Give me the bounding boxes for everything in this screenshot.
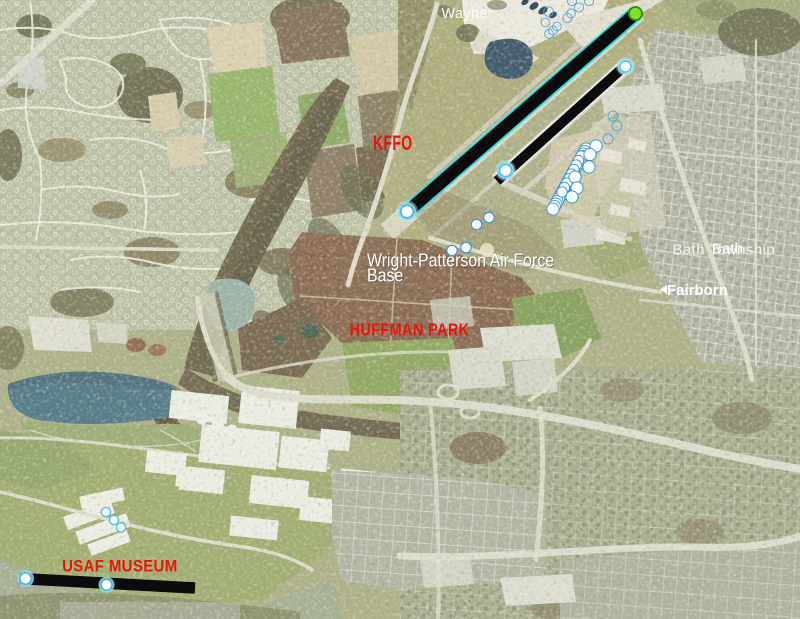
- svg-text:KFFO: KFFO: [373, 131, 412, 155]
- svg-text:Base: Base: [367, 264, 403, 285]
- svg-text:HUFFMAN PARK: HUFFMAN PARK: [350, 320, 470, 340]
- svg-text:Bath: Bath: [712, 241, 743, 258]
- svg-text:Fairborn: Fairborn: [667, 282, 728, 299]
- svg-text:Wayne: Wayne: [442, 6, 489, 22]
- svg-text:USAF MUSEUM: USAF MUSEUM: [62, 558, 177, 576]
